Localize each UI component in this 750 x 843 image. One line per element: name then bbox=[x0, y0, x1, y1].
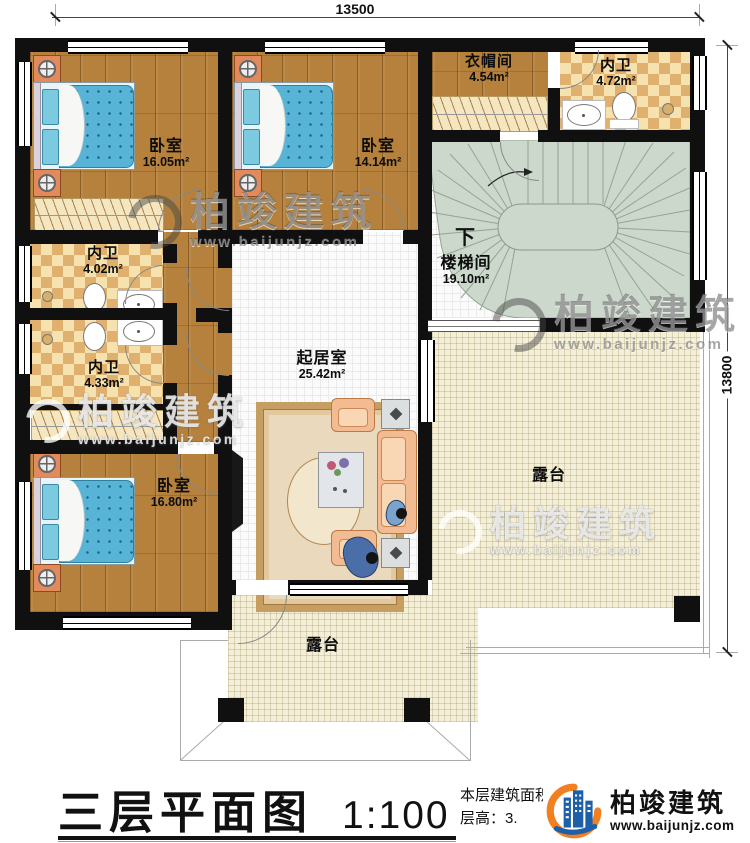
nightstand bbox=[33, 169, 61, 197]
stairs-down-label: 下 bbox=[455, 221, 475, 250]
coffee-table bbox=[318, 452, 364, 508]
wall bbox=[198, 230, 218, 244]
bed bbox=[33, 82, 135, 170]
window bbox=[290, 583, 408, 596]
wall bbox=[218, 375, 232, 440]
wall bbox=[30, 308, 163, 320]
nightstand bbox=[234, 169, 262, 197]
nightstand bbox=[33, 55, 61, 83]
bed bbox=[33, 477, 135, 565]
title-underline bbox=[58, 836, 456, 840]
company-logo-url: www.baijunjz.com bbox=[610, 818, 735, 833]
terrace-rail-line bbox=[460, 653, 710, 654]
company-logo: 柏竣建筑 www.baijunjz.com bbox=[543, 779, 750, 843]
title-underline-thin bbox=[58, 841, 456, 842]
nightstand bbox=[33, 564, 61, 592]
person-head bbox=[396, 508, 407, 519]
terrace-rail-line bbox=[703, 332, 704, 654]
room-label-cloakroom: 衣帽间4.54m² bbox=[465, 54, 513, 84]
window bbox=[17, 62, 32, 146]
window bbox=[68, 40, 188, 54]
towel-hook bbox=[42, 334, 53, 345]
dimension-top-value: 13500 bbox=[332, 2, 379, 17]
room-label-terrace-right: 露台 bbox=[532, 467, 566, 485]
wall bbox=[218, 310, 232, 333]
room-label-bath-mid: 内卫4.02m² bbox=[83, 246, 123, 276]
side-table bbox=[381, 399, 410, 429]
sliding-door bbox=[428, 320, 540, 332]
room-label-bedroom1: 卧室16.05m² bbox=[143, 138, 190, 169]
wall bbox=[163, 383, 177, 440]
window bbox=[63, 616, 191, 630]
wall bbox=[418, 38, 432, 332]
company-logo-icon bbox=[543, 780, 605, 842]
wall bbox=[15, 440, 178, 454]
column bbox=[404, 698, 430, 722]
wall bbox=[548, 130, 705, 142]
wall bbox=[214, 440, 232, 454]
window bbox=[17, 246, 32, 302]
terrace-rail-line bbox=[466, 647, 710, 648]
door-gap bbox=[236, 580, 288, 595]
sink bbox=[123, 321, 155, 342]
column bbox=[674, 596, 700, 622]
floor-drain bbox=[662, 103, 674, 115]
tv bbox=[232, 450, 243, 532]
side-table bbox=[381, 538, 410, 568]
room-label-stairwell: 楼梯间19.10m² bbox=[440, 255, 491, 286]
window bbox=[17, 482, 32, 570]
wall bbox=[30, 404, 163, 410]
column bbox=[218, 698, 244, 722]
room-label-bedroom3: 卧室16.80m² bbox=[151, 478, 198, 509]
window bbox=[265, 40, 385, 54]
drawing-title: 三层平面图 bbox=[58, 790, 313, 835]
drawing-scale: 1:100 bbox=[342, 796, 450, 835]
armchair bbox=[331, 398, 375, 432]
wall bbox=[163, 244, 177, 263]
wall bbox=[163, 303, 177, 345]
wall bbox=[548, 38, 560, 50]
window bbox=[692, 56, 707, 110]
wall bbox=[403, 230, 418, 244]
room-label-bath-low: 内卫4.33m² bbox=[84, 360, 124, 390]
bedroom1-closet bbox=[34, 198, 164, 232]
eave-line bbox=[180, 640, 181, 761]
toilet-tank bbox=[609, 119, 639, 129]
sink bbox=[567, 104, 601, 126]
eave-line bbox=[180, 640, 228, 641]
room-label-bedroom2: 卧室14.14m² bbox=[355, 138, 402, 169]
wall bbox=[15, 230, 158, 244]
wall bbox=[232, 230, 363, 244]
terrace-rail-line bbox=[709, 332, 710, 658]
window bbox=[692, 172, 707, 280]
bed bbox=[234, 82, 334, 170]
floor-plan-canvas: 卧室16.05m² 卧室14.14m² 衣帽间4.54m² 内卫4.72m² 内… bbox=[0, 0, 750, 843]
toilet bbox=[83, 322, 106, 351]
nightstand bbox=[234, 55, 262, 83]
eave-line bbox=[180, 760, 471, 761]
room-label-living: 起居室25.42m² bbox=[296, 350, 347, 381]
window bbox=[17, 324, 32, 374]
window bbox=[419, 340, 435, 422]
towel-hook bbox=[42, 291, 53, 302]
dimension-line-right bbox=[727, 45, 728, 653]
wall bbox=[540, 318, 705, 332]
wall bbox=[218, 38, 232, 244]
wall bbox=[218, 244, 232, 268]
nightstand bbox=[33, 450, 61, 478]
company-logo-text: 柏竣建筑 bbox=[610, 789, 735, 818]
wall bbox=[538, 130, 548, 142]
eave-line bbox=[470, 640, 471, 761]
wall bbox=[428, 130, 500, 142]
cloakroom-rail bbox=[432, 96, 548, 132]
corridor-closet bbox=[31, 410, 165, 442]
room-label-terrace-bottom: 露台 bbox=[306, 637, 340, 655]
toilet bbox=[612, 92, 636, 122]
dimension-right-value: 13800 bbox=[719, 352, 734, 399]
person-head bbox=[366, 552, 378, 564]
room-label-bath-top: 内卫4.72m² bbox=[596, 58, 636, 88]
